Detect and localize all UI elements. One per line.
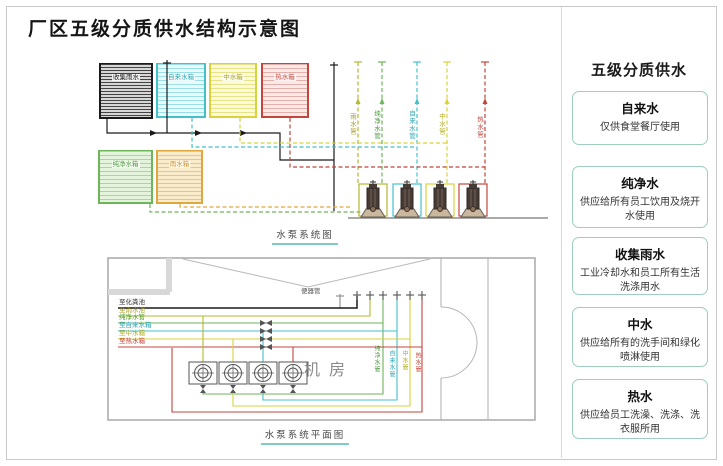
card-name: 热水 xyxy=(579,386,701,405)
pipe-label-tap: 自来水管 xyxy=(407,110,414,140)
sidebar-card-reclaimed-water: 中水 供应给所有的洗手间和绿化喷淋使用 xyxy=(572,307,708,367)
card-name: 中水 xyxy=(579,314,701,333)
system-diagram-caption: 水泵系统图 xyxy=(245,227,365,245)
card-desc: 仅供食堂餐厅使用 xyxy=(579,121,701,135)
pipe-label-hot: 热水管 xyxy=(475,116,482,139)
plan-label-tap: 至自来水箱 xyxy=(119,323,152,330)
system-pipes xyxy=(107,60,548,218)
sidebar-card-rainwater: 收集雨水 工业冷却水和员工所有生活洗涤用水 xyxy=(572,237,708,295)
plan-pump xyxy=(189,362,217,384)
sidebar-card-pure-water: 纯净水 供应给所有员工饮用及烧开水使用 xyxy=(572,166,708,228)
plan-label-pure: 纯净水管 xyxy=(119,315,145,322)
plan-riser-label-pure: 纯净水管 xyxy=(373,345,379,373)
card-desc: 供应给所有的洗手间和绿化喷淋使用 xyxy=(579,337,701,364)
plan-pump xyxy=(249,362,277,384)
pump-symbol xyxy=(395,180,419,217)
card-name: 纯净水 xyxy=(579,173,701,192)
sidebar-card-hot-water: 热水 供应给员工洗澡、洗涤、洗衣服所用 xyxy=(572,379,708,439)
plan-pipes xyxy=(118,291,426,412)
plan-riser-label-tap: 自来水管 xyxy=(388,350,394,378)
plan-diagram-caption: 水泵系统平面图 xyxy=(245,427,365,445)
sidebar-title: 五级分质供水 xyxy=(562,59,716,80)
pump-symbol xyxy=(428,180,452,217)
plan-label-septic: 至化粪池 xyxy=(119,300,145,307)
plan-pump xyxy=(219,362,247,384)
plan-label-hot: 至热水箱 xyxy=(119,339,145,346)
plan-label-reclaimed: 至中水箱 xyxy=(119,331,145,338)
machine-room-label: 机房 xyxy=(304,356,354,380)
pump-symbol xyxy=(361,180,385,217)
card-name: 收集雨水 xyxy=(579,244,701,263)
plan-pump-symbols xyxy=(189,362,307,384)
pump-symbols xyxy=(361,180,485,217)
sidebar: 五级分质供水 自来水 仅供食堂餐厅使用 纯净水 供应给所有员工饮用及烧开水使用 … xyxy=(562,7,716,458)
plan-riser-label-reclaimed: 中水管 xyxy=(401,350,407,371)
page: { "title": "厂区五级分质供水结构示意图", "system_diag… xyxy=(0,0,723,466)
pipe-label-reclaimed: 中水管 xyxy=(437,113,444,136)
card-desc: 供应给员工洗澡、洗涤、洗衣服所用 xyxy=(579,409,701,436)
sidebar-card-tap-water: 自来水 仅供食堂餐厅使用 xyxy=(572,91,708,145)
pipe-label-pure: 纯净水管 xyxy=(372,110,379,140)
card-desc: 供应给所有员工饮用及烧开水使用 xyxy=(579,196,701,223)
pump-symbol xyxy=(461,180,485,217)
pipe-label-rain: 雨水管 xyxy=(348,113,355,136)
card-desc: 工业冷却水和员工所有生活洗涤用水 xyxy=(579,267,701,294)
plan-riser-label-hot: 热水管 xyxy=(414,352,420,373)
plan-label-toilet-pipe: 便器管 xyxy=(301,289,321,296)
plan-pump xyxy=(279,362,307,384)
card-name: 自来水 xyxy=(579,98,701,117)
